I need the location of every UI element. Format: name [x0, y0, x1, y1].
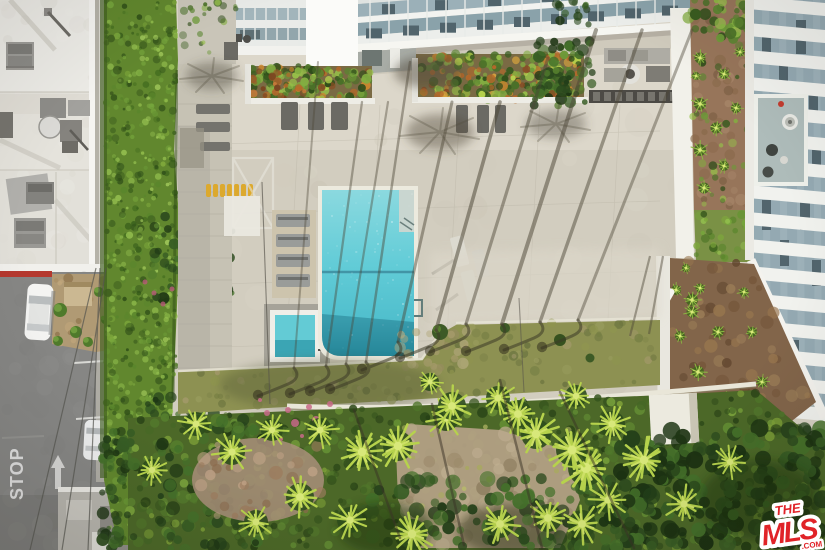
svg-text:.COM: .COM [801, 539, 823, 550]
